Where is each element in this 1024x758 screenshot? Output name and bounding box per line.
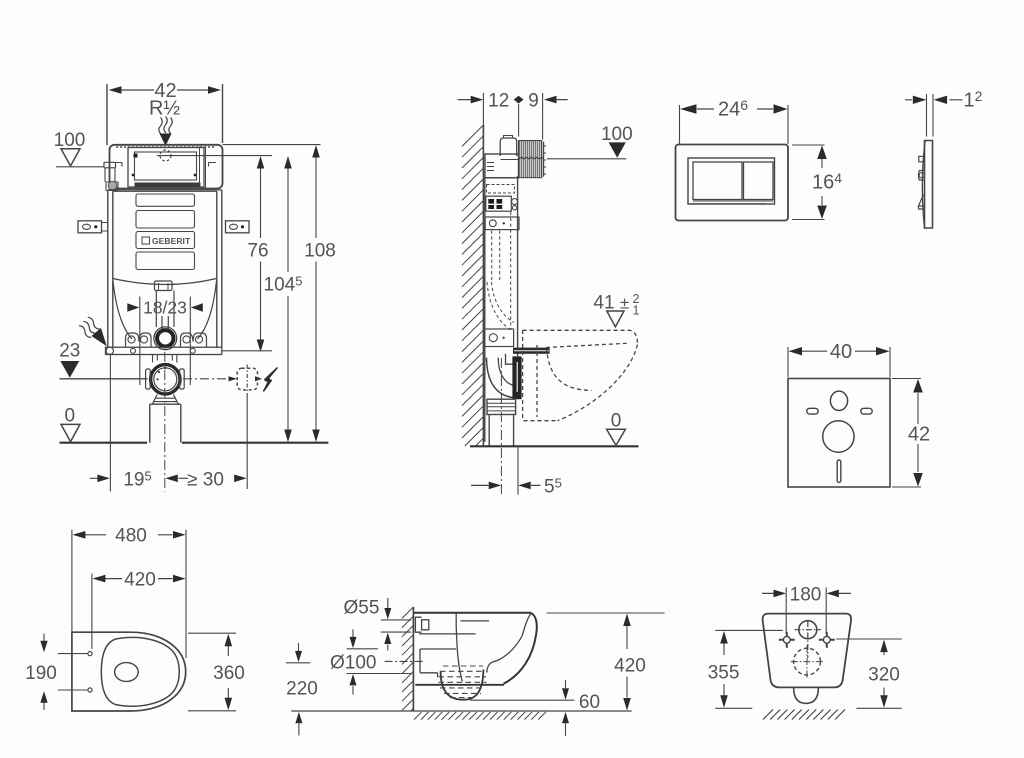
svg-text:420: 420 — [124, 570, 156, 591]
svg-text:1045: 1045 — [264, 274, 303, 296]
svg-text:18/23: 18/23 — [143, 298, 187, 318]
svg-text:320: 320 — [868, 665, 900, 686]
svg-text:40: 40 — [830, 341, 852, 363]
svg-text:190: 190 — [25, 663, 57, 684]
svg-text:195: 195 — [123, 469, 151, 491]
svg-text:60: 60 — [579, 692, 600, 713]
svg-text:100: 100 — [54, 130, 86, 151]
svg-text:1: 1 — [633, 304, 640, 318]
svg-text:12: 12 — [488, 91, 509, 112]
svg-text:9: 9 — [528, 90, 539, 111]
svg-text:76: 76 — [247, 241, 268, 262]
svg-text:246: 246 — [718, 97, 748, 121]
svg-text:360: 360 — [213, 663, 245, 684]
svg-text:GEBERIT: GEBERIT — [152, 236, 191, 246]
svg-text:Ø55: Ø55 — [344, 598, 380, 619]
svg-text:420: 420 — [614, 656, 646, 677]
svg-text:42: 42 — [908, 424, 930, 446]
svg-text:100: 100 — [601, 124, 633, 145]
svg-text:±: ± — [620, 294, 629, 313]
svg-text:480: 480 — [115, 526, 147, 547]
svg-text:164: 164 — [812, 170, 842, 194]
svg-text:0: 0 — [65, 406, 76, 427]
svg-text:R½: R½ — [149, 98, 180, 120]
svg-text:23: 23 — [59, 341, 80, 362]
svg-text:0: 0 — [611, 411, 622, 432]
svg-text:220: 220 — [286, 679, 318, 700]
svg-text:≥ 30: ≥ 30 — [187, 470, 224, 491]
svg-text:108: 108 — [304, 241, 336, 262]
svg-text:Ø100: Ø100 — [330, 652, 376, 673]
svg-text:180: 180 — [790, 585, 822, 606]
svg-text:12: 12 — [964, 88, 983, 112]
svg-text:355: 355 — [708, 663, 740, 684]
svg-text:55: 55 — [544, 476, 562, 498]
